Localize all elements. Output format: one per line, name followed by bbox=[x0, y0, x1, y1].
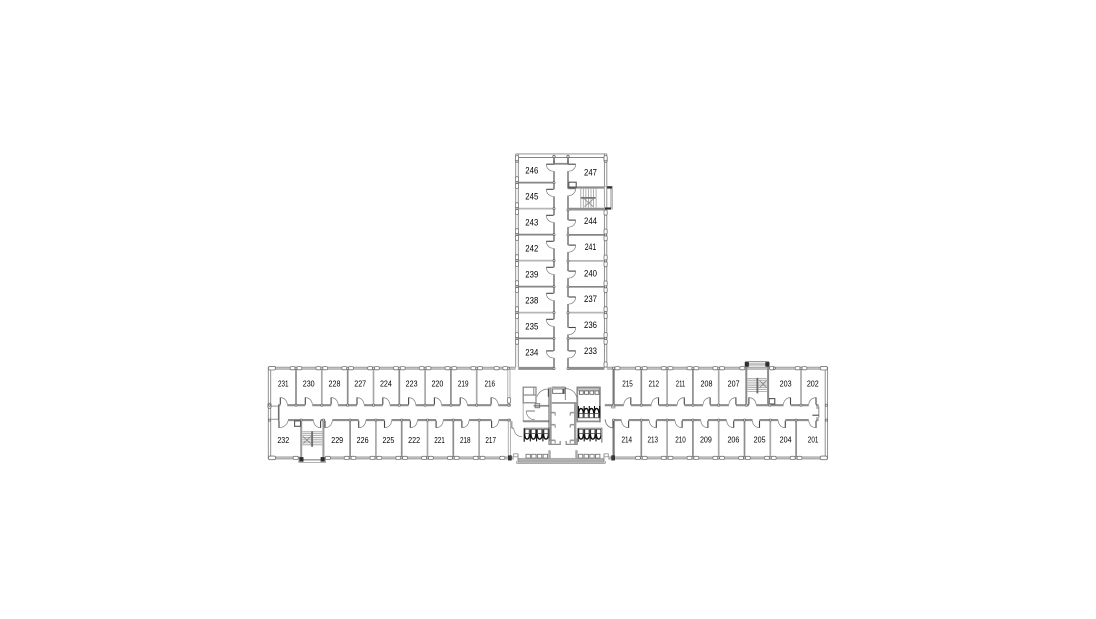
svg-text:246: 246 bbox=[525, 165, 538, 175]
svg-text:222: 222 bbox=[408, 435, 420, 445]
svg-text:218: 218 bbox=[460, 435, 471, 445]
svg-text:228: 228 bbox=[329, 378, 341, 388]
svg-text:233: 233 bbox=[584, 346, 597, 356]
svg-text:212: 212 bbox=[649, 378, 660, 388]
svg-text:204: 204 bbox=[780, 435, 792, 445]
svg-text:226: 226 bbox=[357, 435, 369, 445]
svg-text:201: 201 bbox=[808, 435, 819, 445]
svg-text:242: 242 bbox=[525, 244, 538, 254]
svg-text:234: 234 bbox=[525, 347, 538, 357]
svg-text:220: 220 bbox=[431, 378, 443, 388]
svg-text:221: 221 bbox=[434, 435, 445, 445]
svg-text:238: 238 bbox=[525, 296, 538, 306]
svg-text:230: 230 bbox=[303, 378, 315, 388]
svg-text:219: 219 bbox=[458, 378, 469, 388]
svg-text:232: 232 bbox=[277, 435, 289, 445]
svg-text:244: 244 bbox=[584, 216, 597, 226]
svg-text:227: 227 bbox=[354, 378, 366, 388]
svg-text:231: 231 bbox=[278, 378, 289, 388]
svg-text:205: 205 bbox=[754, 435, 766, 445]
svg-text:240: 240 bbox=[584, 268, 597, 278]
svg-text:237: 237 bbox=[584, 294, 597, 304]
svg-text:211: 211 bbox=[676, 378, 686, 388]
svg-text:241: 241 bbox=[585, 242, 597, 252]
svg-text:202: 202 bbox=[807, 378, 819, 388]
svg-text:209: 209 bbox=[700, 435, 712, 445]
svg-text:243: 243 bbox=[525, 218, 538, 228]
svg-text:247: 247 bbox=[584, 167, 597, 177]
svg-text:225: 225 bbox=[382, 435, 394, 445]
svg-text:206: 206 bbox=[727, 435, 739, 445]
svg-text:239: 239 bbox=[525, 269, 538, 279]
svg-text:213: 213 bbox=[648, 435, 659, 445]
svg-text:245: 245 bbox=[525, 191, 538, 201]
svg-text:235: 235 bbox=[525, 322, 538, 332]
svg-text:203: 203 bbox=[780, 378, 792, 388]
svg-text:236: 236 bbox=[584, 320, 597, 330]
svg-text:215: 215 bbox=[622, 378, 633, 388]
svg-text:214: 214 bbox=[622, 435, 633, 445]
svg-text:216: 216 bbox=[485, 378, 496, 388]
svg-text:229: 229 bbox=[331, 435, 343, 445]
svg-text:210: 210 bbox=[675, 435, 686, 445]
svg-text:217: 217 bbox=[485, 435, 496, 445]
svg-text:208: 208 bbox=[701, 378, 713, 388]
svg-text:207: 207 bbox=[728, 378, 740, 388]
svg-text:224: 224 bbox=[380, 378, 392, 388]
svg-text:223: 223 bbox=[406, 378, 418, 388]
